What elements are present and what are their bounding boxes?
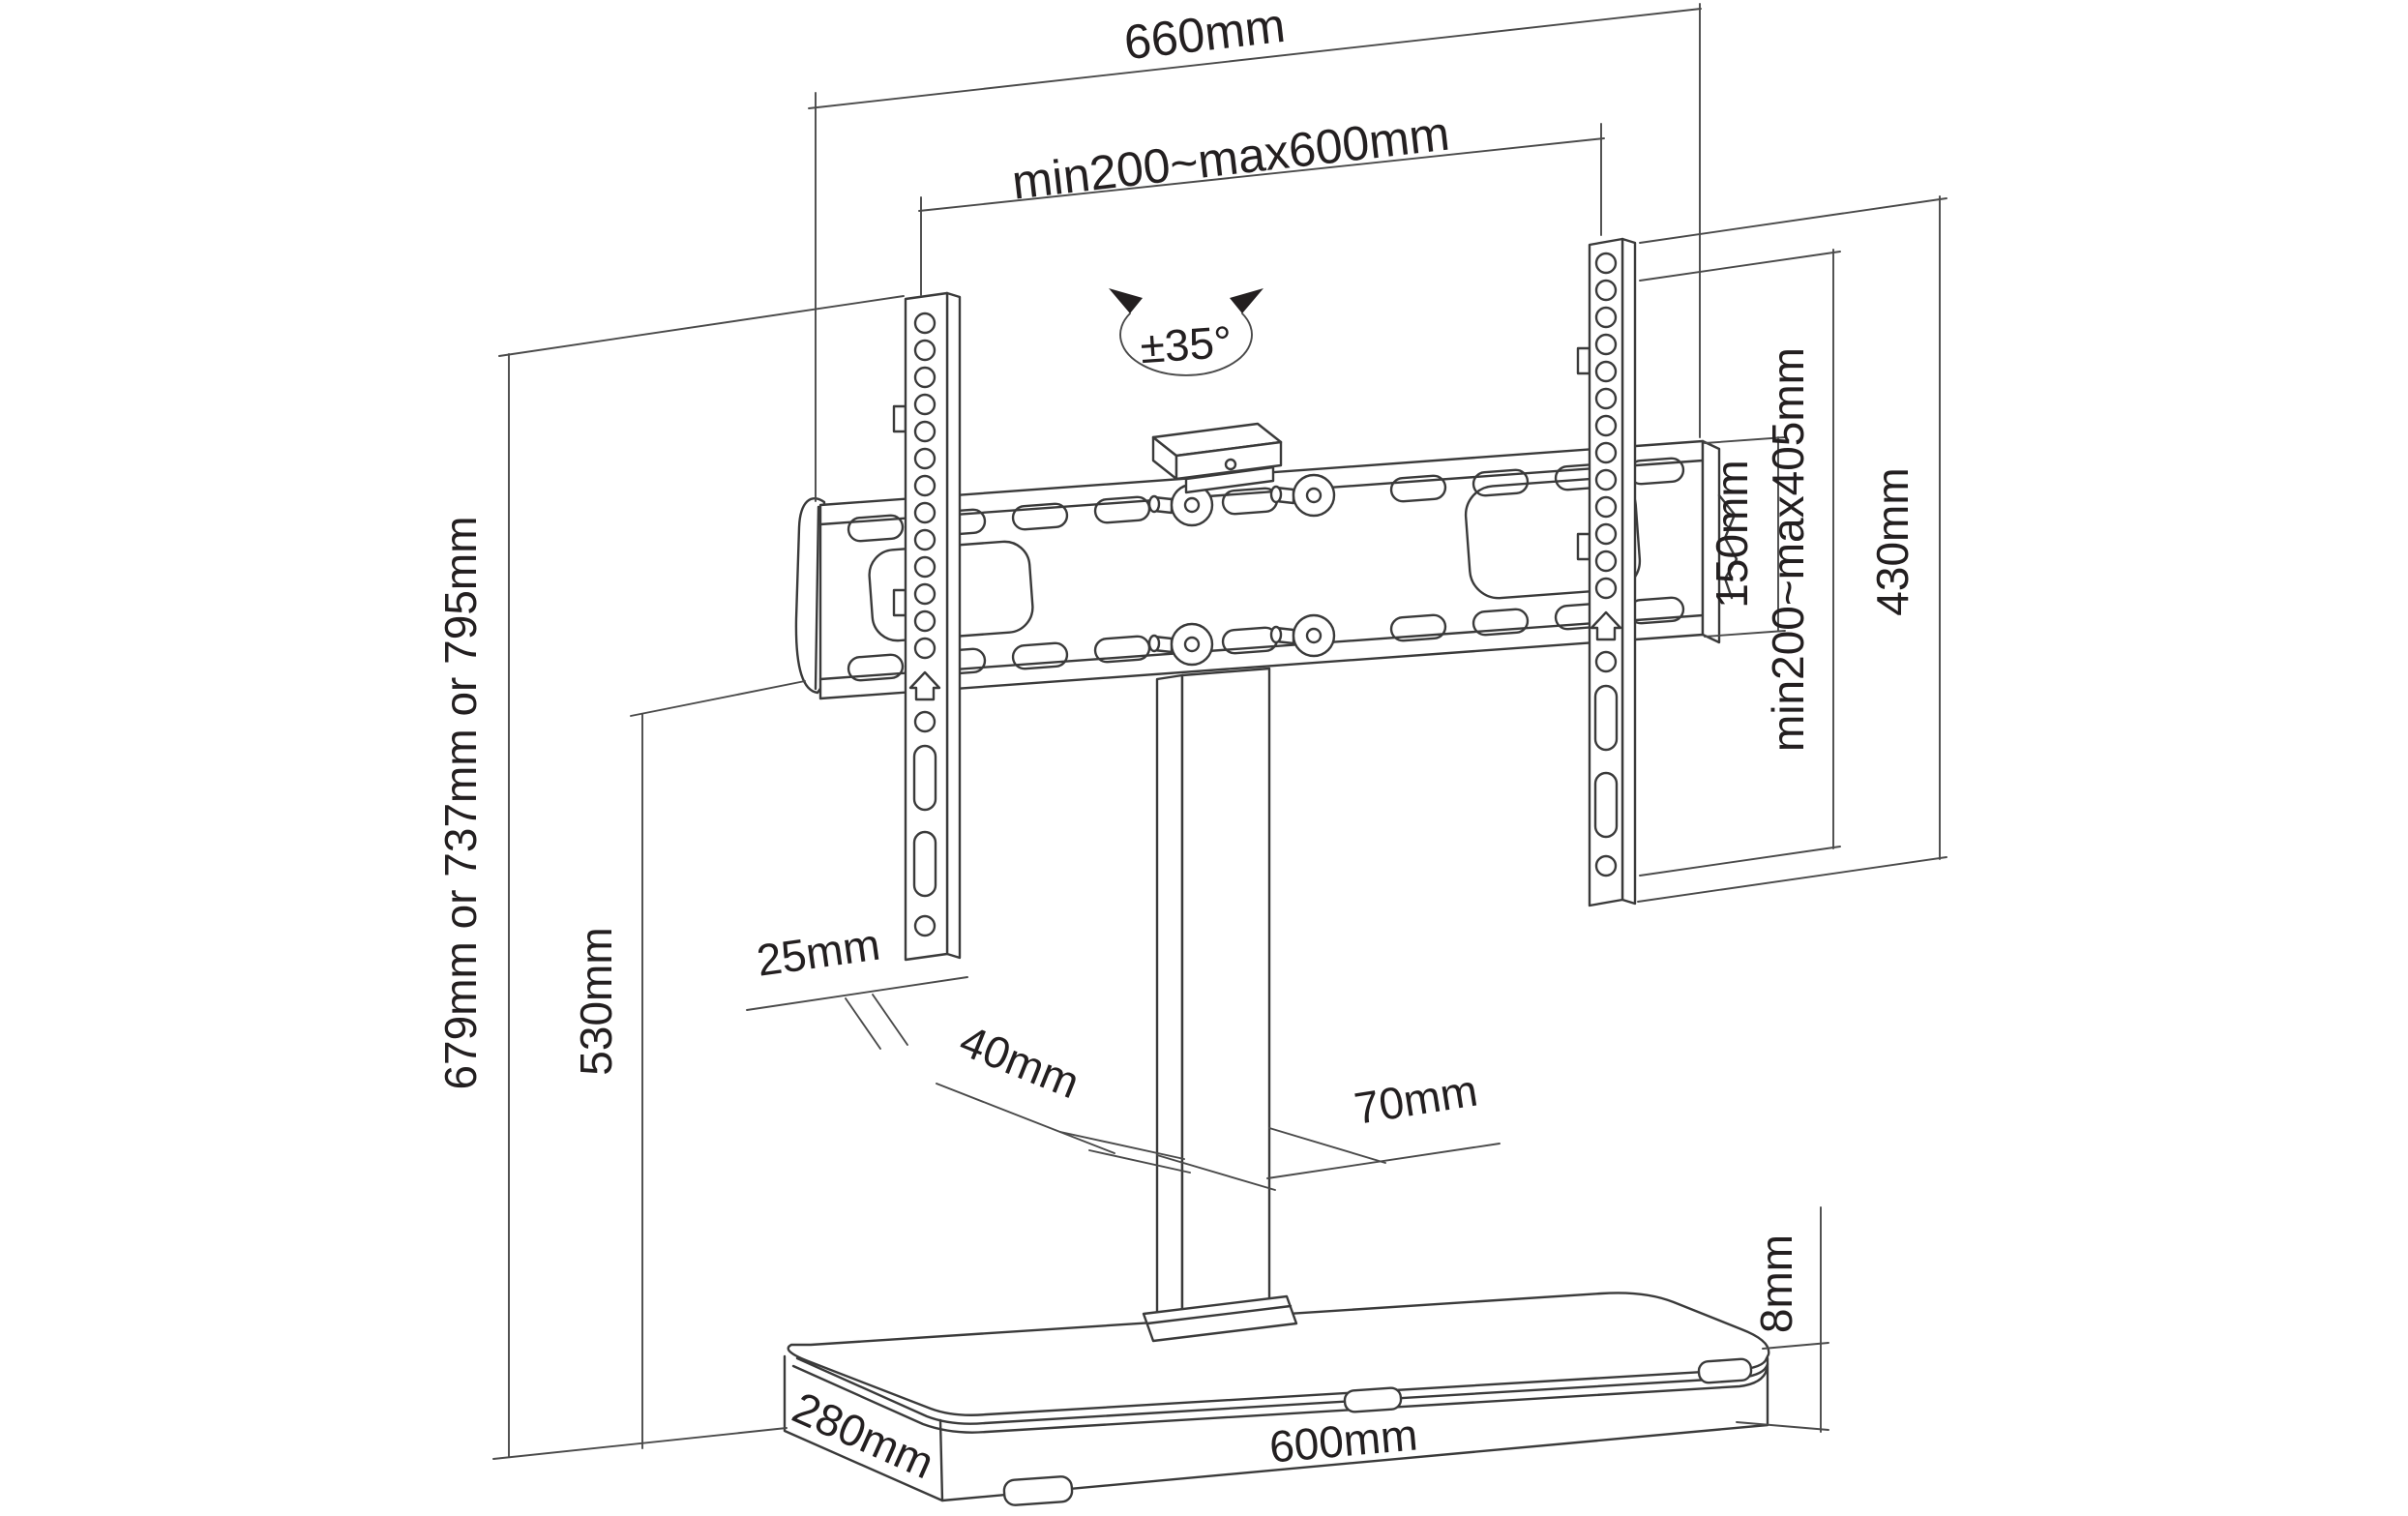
vesa-height-ext-bottom xyxy=(1640,847,1840,876)
bracket-right-tab-1 xyxy=(1578,348,1590,373)
base-thickness-label: 8mm xyxy=(1751,1234,1801,1333)
bracket-height-ext-top xyxy=(1640,198,1947,243)
dimension-column-height: 530mm xyxy=(571,681,805,1448)
base-foot-middle xyxy=(1344,1387,1401,1412)
bracket-offset-label: 25mm xyxy=(754,919,883,986)
technical-drawing-page: ±35° 660mm min200~max600mm 150mm min200~… xyxy=(0,0,2408,1516)
column-depth-label: 40mm xyxy=(953,1015,1086,1108)
vesa-height-ext-top xyxy=(1640,252,1840,281)
dimension-base-thickness: 8mm xyxy=(1737,1207,1828,1432)
overall-height-ext-bottom xyxy=(493,1428,787,1459)
bracket-left-side-face xyxy=(947,293,960,958)
swivel-angle-label: ±35° xyxy=(1139,316,1234,372)
base-foot-left xyxy=(1003,1476,1073,1506)
vesa-height-label: min200~max405mm xyxy=(1763,347,1813,752)
tv-stand-dimension-diagram: ±35° 660mm min200~max600mm 150mm min200~… xyxy=(0,0,2408,1516)
column-width-ext-1 xyxy=(1269,1128,1385,1163)
bracket-left-tab-1 xyxy=(894,406,906,431)
base-foot-right xyxy=(1698,1358,1751,1383)
overall-height-label: 679mm or 737mm or 795mm xyxy=(435,516,486,1089)
base-width-label: 600mm xyxy=(1267,1409,1419,1471)
column-width-label: 70mm xyxy=(1351,1065,1480,1134)
base-front-left-seam xyxy=(940,1420,942,1501)
swivel-indicator: ±35° xyxy=(1109,288,1263,375)
plate-height-label: 150mm xyxy=(1707,460,1757,608)
column-height-label: 530mm xyxy=(571,927,621,1075)
bracket-offset-tick-2 xyxy=(846,998,880,1049)
overall-height-ext-top xyxy=(499,296,904,356)
vesa-width-label: min200~max600mm xyxy=(1009,106,1452,210)
column-side-face xyxy=(1157,675,1182,1316)
swivel-arrow-left-icon xyxy=(1109,288,1143,313)
bracket-right-side-face xyxy=(1622,239,1635,904)
overall-width-label: 660mm xyxy=(1121,0,1288,70)
bracket-height-ext-bottom xyxy=(1638,857,1947,902)
base-thickness-ext-top xyxy=(1763,1343,1828,1349)
support-column xyxy=(1144,669,1296,1341)
bracket-height-label: 430mm xyxy=(1867,467,1917,615)
column-front-face xyxy=(1182,669,1269,1312)
bracket-offset-tick-1 xyxy=(873,995,907,1045)
dimension-overall-height: 679mm or 737mm or 795mm xyxy=(435,296,904,1459)
dimension-column-depth: 40mm xyxy=(936,1015,1190,1173)
swivel-arrow-right-icon xyxy=(1230,288,1263,313)
dimension-vesa-width-range: min200~max600mm xyxy=(919,106,1604,295)
column-depth-line xyxy=(936,1084,1115,1153)
column-height-ext-top xyxy=(631,681,805,716)
bracket-left-front-face xyxy=(906,293,947,960)
column-width-line xyxy=(1267,1144,1500,1178)
